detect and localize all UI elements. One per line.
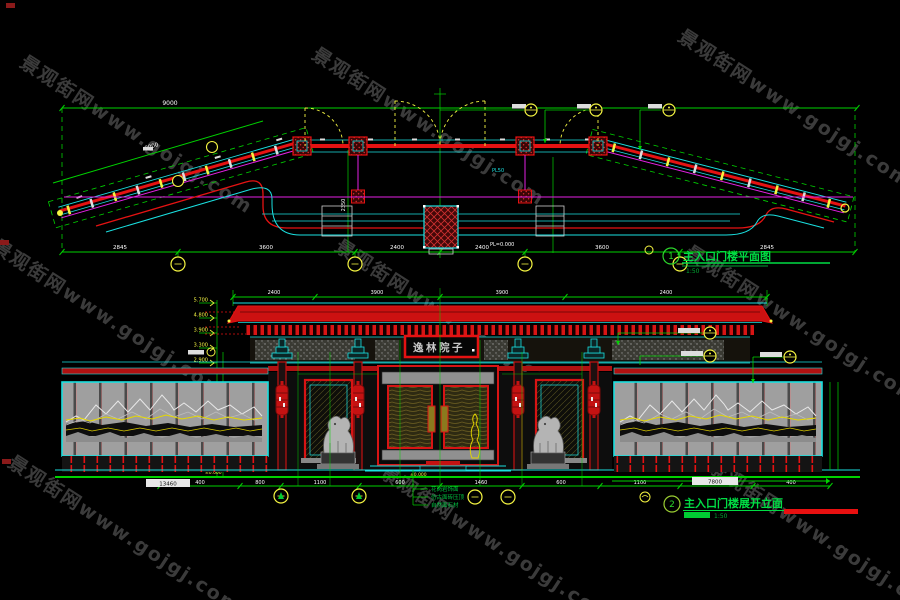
level-label: 2.900 — [194, 358, 208, 364]
elev-roof-dims: 2400 3900 3900 2400 — [268, 290, 673, 296]
elevation-title-scale: 1:50 — [714, 513, 728, 520]
cad-canvas: 9000 8000 2845 3600 2400 2400 3600 2845 … — [0, 0, 900, 600]
beam-note: PL50 — [492, 168, 504, 174]
right-wall — [612, 362, 838, 472]
plan-title-scale: 1:50 — [686, 268, 700, 275]
total-dim-left: 13460 — [159, 482, 177, 488]
level-label: 4.800 — [194, 313, 208, 319]
elev-axis-bubbles — [274, 489, 515, 504]
dim-label: 2400 — [390, 245, 404, 251]
material-label: 自然面石材 — [431, 501, 459, 509]
main-doors — [365, 366, 511, 471]
plan-title: 1 主入口门楼平面图 1:50 — [645, 246, 830, 275]
dim-label: 3900 — [496, 290, 509, 296]
level-label: 3.900 — [194, 328, 208, 334]
dim-label: 1460 — [475, 480, 488, 486]
wing-label-bar — [143, 147, 153, 151]
dim-label: 2400 — [475, 245, 489, 251]
plan-view: 9000 8000 2845 3600 2400 2400 3600 2845 … — [48, 88, 859, 275]
level-label: 3.300 — [194, 343, 208, 349]
total-dim-right: 7800 — [708, 480, 722, 486]
elevation-title: 2 主入口门楼展开立面 1:50 — [640, 492, 858, 520]
level-label: 5.700 — [194, 298, 208, 304]
elevation-title-text: 主入口门楼展开立面 — [684, 496, 783, 510]
dim-label: 3600 — [259, 245, 273, 251]
plan-axis-bubbles — [171, 252, 687, 271]
plan-title-number: 1 — [668, 252, 674, 262]
dim-label: 2845 — [113, 245, 127, 251]
signboard: 逸林院子 — [405, 336, 478, 357]
wing-detail-bubble — [173, 176, 184, 187]
cad-viewport: 景观街网www.gojgj.com 景观街网www.gojgj.com 景观街网… — [0, 0, 900, 600]
elevation-title-number: 2 — [669, 500, 675, 510]
dim-label: 2400 — [660, 290, 673, 296]
rafter-row — [246, 325, 754, 335]
dim-label: 1100 — [314, 480, 327, 486]
elevation-view: 2400 3900 3900 2400 5. — [55, 288, 860, 520]
dim-label: 2400 — [268, 290, 281, 296]
plan-detail-markers — [440, 104, 675, 150]
signboard-text: 逸林院子 — [413, 341, 465, 354]
plan-total-dim: 9000 — [162, 100, 177, 107]
material-label: 仿古面砖压顶 — [431, 493, 465, 501]
title-green-bar — [684, 512, 710, 518]
wing-endcap — [57, 210, 63, 216]
dim-label: 600 — [556, 480, 566, 486]
wing-detail-bubble — [207, 142, 218, 153]
plan-title-text: 主入口门楼平面图 — [683, 249, 771, 263]
material-label: 花岗岩饰面 — [431, 485, 459, 493]
elev-beam-band: 逸林院子 — [250, 336, 750, 363]
plan-paving — [423, 205, 459, 254]
dim-label: 600 — [395, 480, 405, 486]
dim-label: 800 — [255, 480, 265, 486]
dim-label: 400 — [195, 480, 205, 486]
dim-label: 3600 — [595, 245, 609, 251]
title-red-bar — [784, 509, 858, 514]
plan-vertical-dim: 2350 — [341, 199, 347, 212]
plan-right-wing — [586, 129, 854, 222]
dim-label: 3900 — [371, 290, 384, 296]
level-note: PL=0.000 — [490, 242, 514, 248]
